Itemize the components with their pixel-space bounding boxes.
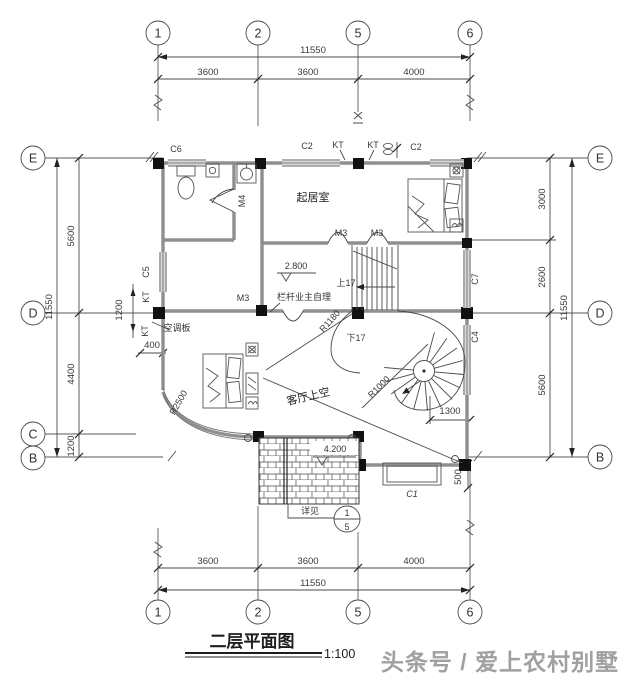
window-label-c1: C1 [406, 489, 418, 499]
dim-right-seg-1: 3000 [537, 188, 548, 209]
bed-lower-left [203, 354, 243, 408]
dim-right-total: 11550 [559, 295, 570, 321]
ac-unit-symbol [384, 143, 393, 154]
balcony-r2500-label: R2500 [167, 389, 189, 417]
toilet [177, 166, 195, 199]
axis-right-D: D [595, 307, 604, 321]
dim-left-seg-3: 1200 [66, 435, 77, 456]
dim-bottom-seg-3: 4000 [403, 556, 424, 567]
axis-top-6: 6 [467, 27, 474, 41]
axis-bottom-1: 1 [155, 606, 162, 620]
ac-label-kt3: KT [141, 291, 151, 303]
stair-outer-curve [394, 311, 465, 410]
axis-bottom-5: 5 [355, 606, 362, 620]
axis-top-2: 2 [255, 27, 262, 41]
floor-plan-drawing: 1 2 5 6 1 2 5 6 E D C B E D B 11 [0, 0, 640, 686]
axis-left-D: D [28, 307, 37, 321]
axis-top-5: 5 [355, 27, 362, 41]
dim-left-seg-2: 4400 [66, 363, 77, 384]
window-label-c4: C4 [470, 331, 480, 343]
detail-index-bubble: 1 5 [334, 506, 360, 532]
dim-bottom-seg-2: 3600 [297, 556, 318, 567]
window-label-c6: C6 [170, 144, 182, 154]
door-label-m3b: M3 [371, 228, 384, 238]
door-label-m3c: M3 [237, 293, 250, 303]
axis-bubbles-left: E D C B [21, 146, 45, 470]
dim-right-seg-2: 2600 [537, 266, 548, 287]
axis-bubbles-top: 1 2 5 6 [146, 21, 482, 45]
nightstand-3 [246, 397, 258, 409]
window-C2a [282, 159, 340, 167]
washbasin [237, 164, 256, 183]
window-C2b [430, 159, 464, 167]
window-label-c2a: C2 [301, 141, 313, 151]
window-C1 [383, 463, 441, 485]
door-label-m3a: M3 [335, 228, 348, 238]
drawing-title: 二层平面图 [210, 632, 295, 651]
axis-bubbles-right: E D B [588, 146, 612, 469]
dim-right-seg-3: 5600 [537, 374, 548, 395]
level-floor: 2.800 [285, 261, 308, 271]
detail-number: 1 [344, 508, 349, 518]
ac-label-kt4: KT [140, 325, 150, 337]
dim-left-total: 11550 [44, 294, 55, 320]
axis-left-C: C [28, 428, 37, 442]
stair-cut-line [353, 251, 397, 269]
title-block: 二层平面图 1:100 [185, 632, 355, 661]
dim-left-seg-1: 5600 [66, 225, 77, 246]
stair-up-label: 上17 [336, 278, 355, 288]
ac-label-kt1: KT [332, 140, 344, 150]
dim-inner-1300: 1300 [439, 406, 460, 417]
drawing-scale: 1:100 [324, 647, 355, 661]
dim-bottom-seg-1: 3600 [197, 556, 218, 567]
dim-top-total: 11550 [300, 45, 326, 56]
void-and-roof: 1 5 [259, 314, 462, 532]
nightstand-2 [450, 219, 463, 232]
dim-inner-500: 500 [453, 469, 464, 485]
dresser [246, 373, 258, 394]
axis-grid: 1 2 5 6 1 2 5 6 E D C B E D B [21, 21, 612, 624]
watermark-text: 头条号 / 爱上农村别墅 [381, 649, 619, 675]
axis-right-E: E [596, 152, 604, 166]
stair-treads-straight [357, 247, 392, 310]
stair [331, 245, 465, 411]
plan-svg: 1 2 5 6 1 2 5 6 E D C B E D B 11 [0, 0, 640, 686]
axis5-top-mark [353, 112, 363, 123]
ac-slab-label: 空调板 [163, 322, 190, 333]
axis-bottom-2: 2 [255, 606, 262, 620]
dim-top-seg-1: 3600 [197, 67, 218, 78]
door-M3c-swing [283, 311, 303, 321]
level-mark-2800: 2.800 [277, 261, 316, 281]
axis-bubbles-bottom: 1 2 5 6 [146, 600, 482, 624]
dim-top-seg-2: 3600 [297, 67, 318, 78]
window-label-c2b: C2 [410, 142, 422, 152]
detail-sheet: 5 [344, 522, 349, 532]
dim-inner-1200: 1200 [114, 299, 125, 320]
door-M4-swing [210, 189, 234, 212]
window-C5 [159, 252, 167, 292]
dim-bottom-total: 11550 [300, 578, 326, 589]
void-diagonal-2 [266, 314, 352, 370]
stair-down-label: 下17 [346, 333, 365, 343]
window-label-c7: C7 [470, 273, 480, 285]
columns [153, 158, 473, 471]
ac-label-kt2: KT [367, 140, 379, 150]
railing-note: 栏杆业主自理 [277, 291, 331, 302]
floor-drain [206, 164, 219, 177]
stair-r1000-label: R1000 [366, 374, 392, 400]
level-roof: 4.200 [324, 444, 347, 454]
see-detail-note: 详见 [301, 505, 319, 516]
fan-symbol [246, 343, 258, 356]
dim-inner-400: 400 [144, 340, 160, 351]
axis-left-B: B [29, 452, 37, 466]
axis-bottom-6: 6 [467, 606, 474, 620]
axis-right-B: B [596, 451, 604, 465]
window-label-c5: C5 [141, 266, 151, 278]
door-label-m4: M4 [237, 195, 247, 208]
walls [153, 158, 473, 471]
axis-top-1: 1 [155, 27, 162, 41]
room-label-living: 起居室 [297, 190, 330, 204]
dim-top-seg-3: 4000 [403, 67, 424, 78]
axis-left-E: E [29, 152, 37, 166]
